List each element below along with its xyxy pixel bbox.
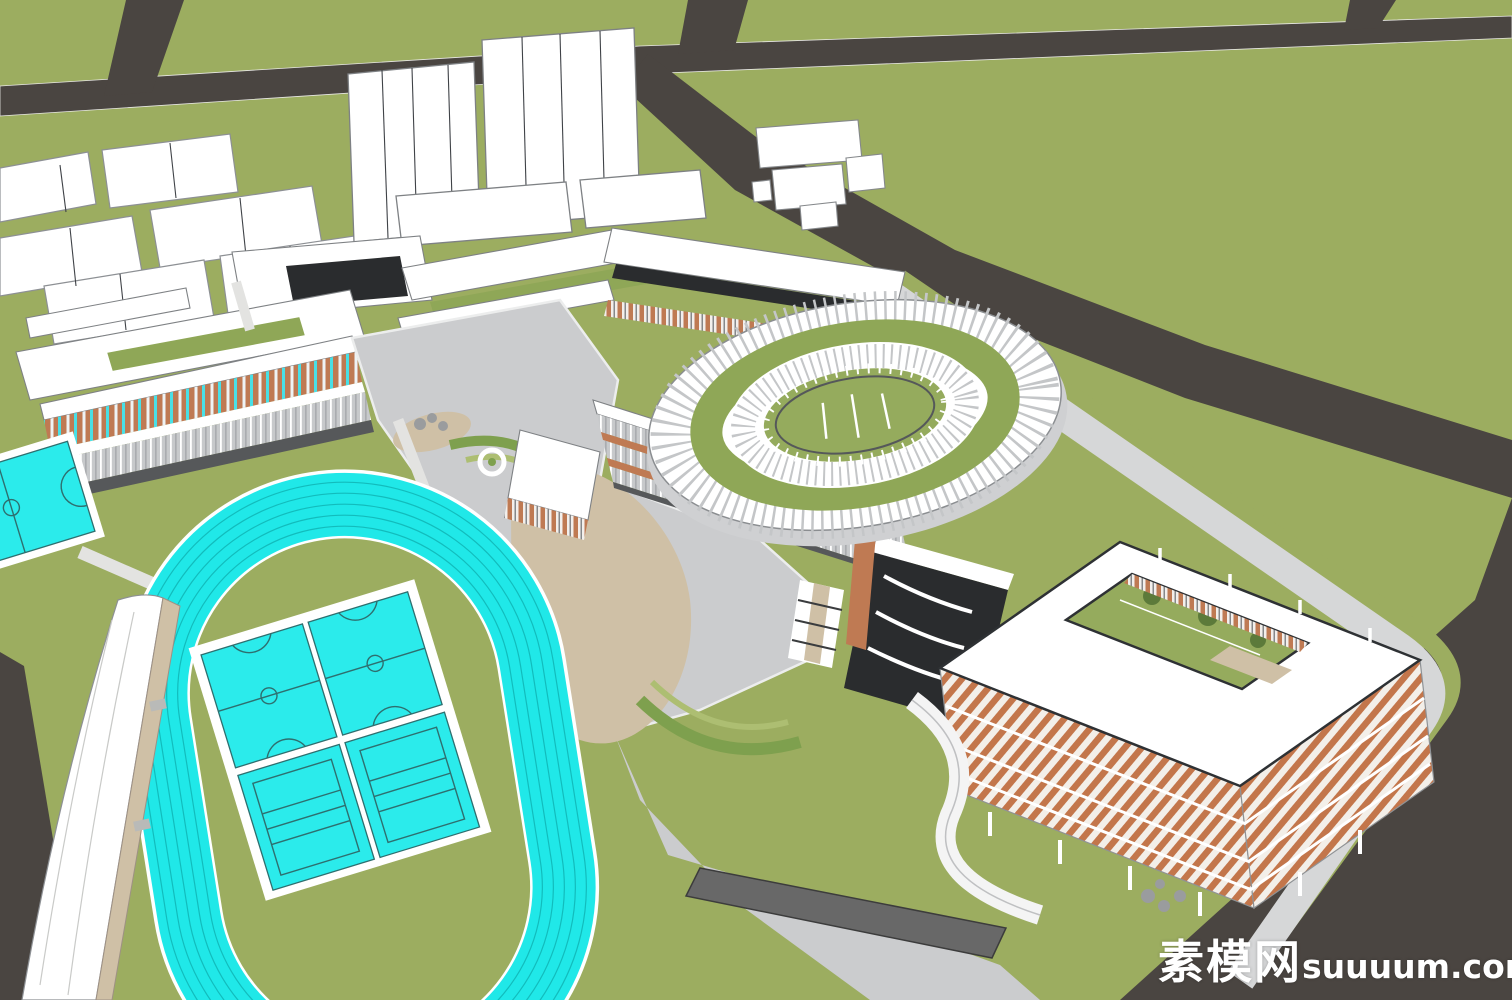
- massing-block: [846, 154, 885, 192]
- landscape-circle-feature: [488, 458, 496, 466]
- watermark: 素模网suuuum.com: [1158, 926, 1512, 992]
- watermark-site-name: 素模网: [1158, 926, 1302, 992]
- massing-block: [800, 202, 838, 230]
- watermark-domain: suuuum.com: [1302, 947, 1512, 986]
- tower-podium: [580, 170, 706, 228]
- render-canvas: 素模网suuuum.com: [0, 0, 1512, 1000]
- campus-illustration: [0, 0, 1512, 1000]
- massing-block: [752, 180, 772, 202]
